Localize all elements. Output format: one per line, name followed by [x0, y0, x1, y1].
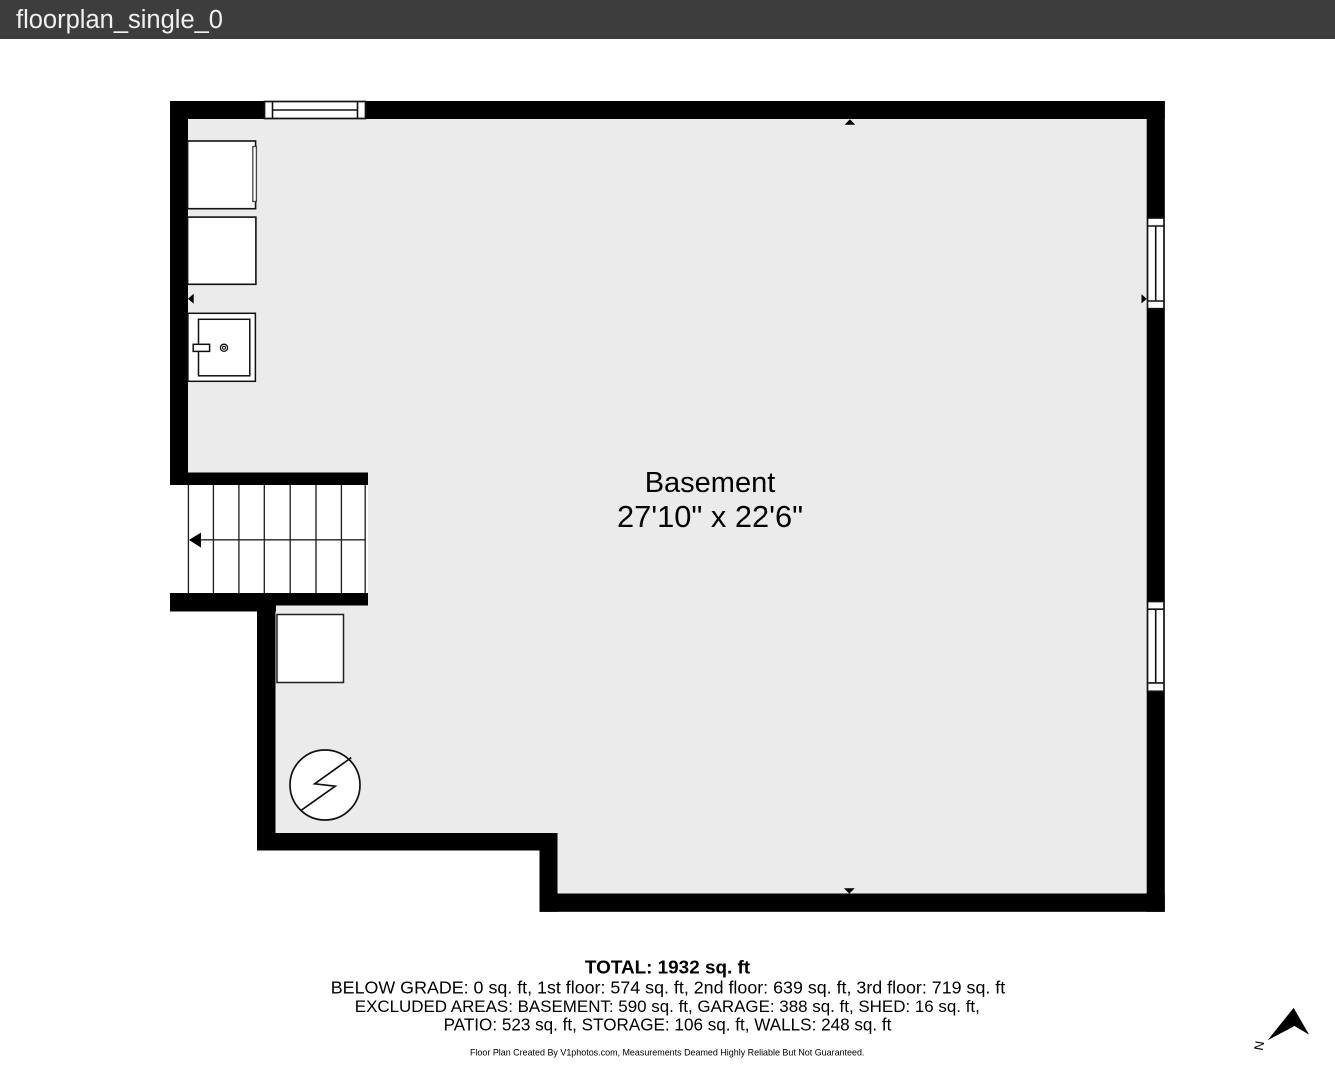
svg-text:27'10" x 22'6": 27'10" x 22'6": [617, 499, 803, 534]
svg-text:BELOW GRADE: 0 sq. ft, 1st flo: BELOW GRADE: 0 sq. ft, 1st floor: 574 sq…: [331, 977, 1005, 997]
svg-text:floorplan_single_0: floorplan_single_0: [16, 6, 223, 34]
svg-text:Basement: Basement: [645, 467, 776, 499]
svg-text:Floor Plan Created By V1photos: Floor Plan Created By V1photos.com, Meas…: [470, 1048, 864, 1058]
svg-text:TOTAL: 1932 sq. ft: TOTAL: 1932 sq. ft: [585, 958, 751, 979]
svg-text:EXCLUDED AREAS: BASEMENT: 590: EXCLUDED AREAS: BASEMENT: 590 sq. ft, GA…: [355, 997, 980, 1016]
svg-text:PATIO: 523 sq. ft, STORAGE: 10: PATIO: 523 sq. ft, STORAGE: 106 sq. ft, …: [444, 1015, 892, 1034]
